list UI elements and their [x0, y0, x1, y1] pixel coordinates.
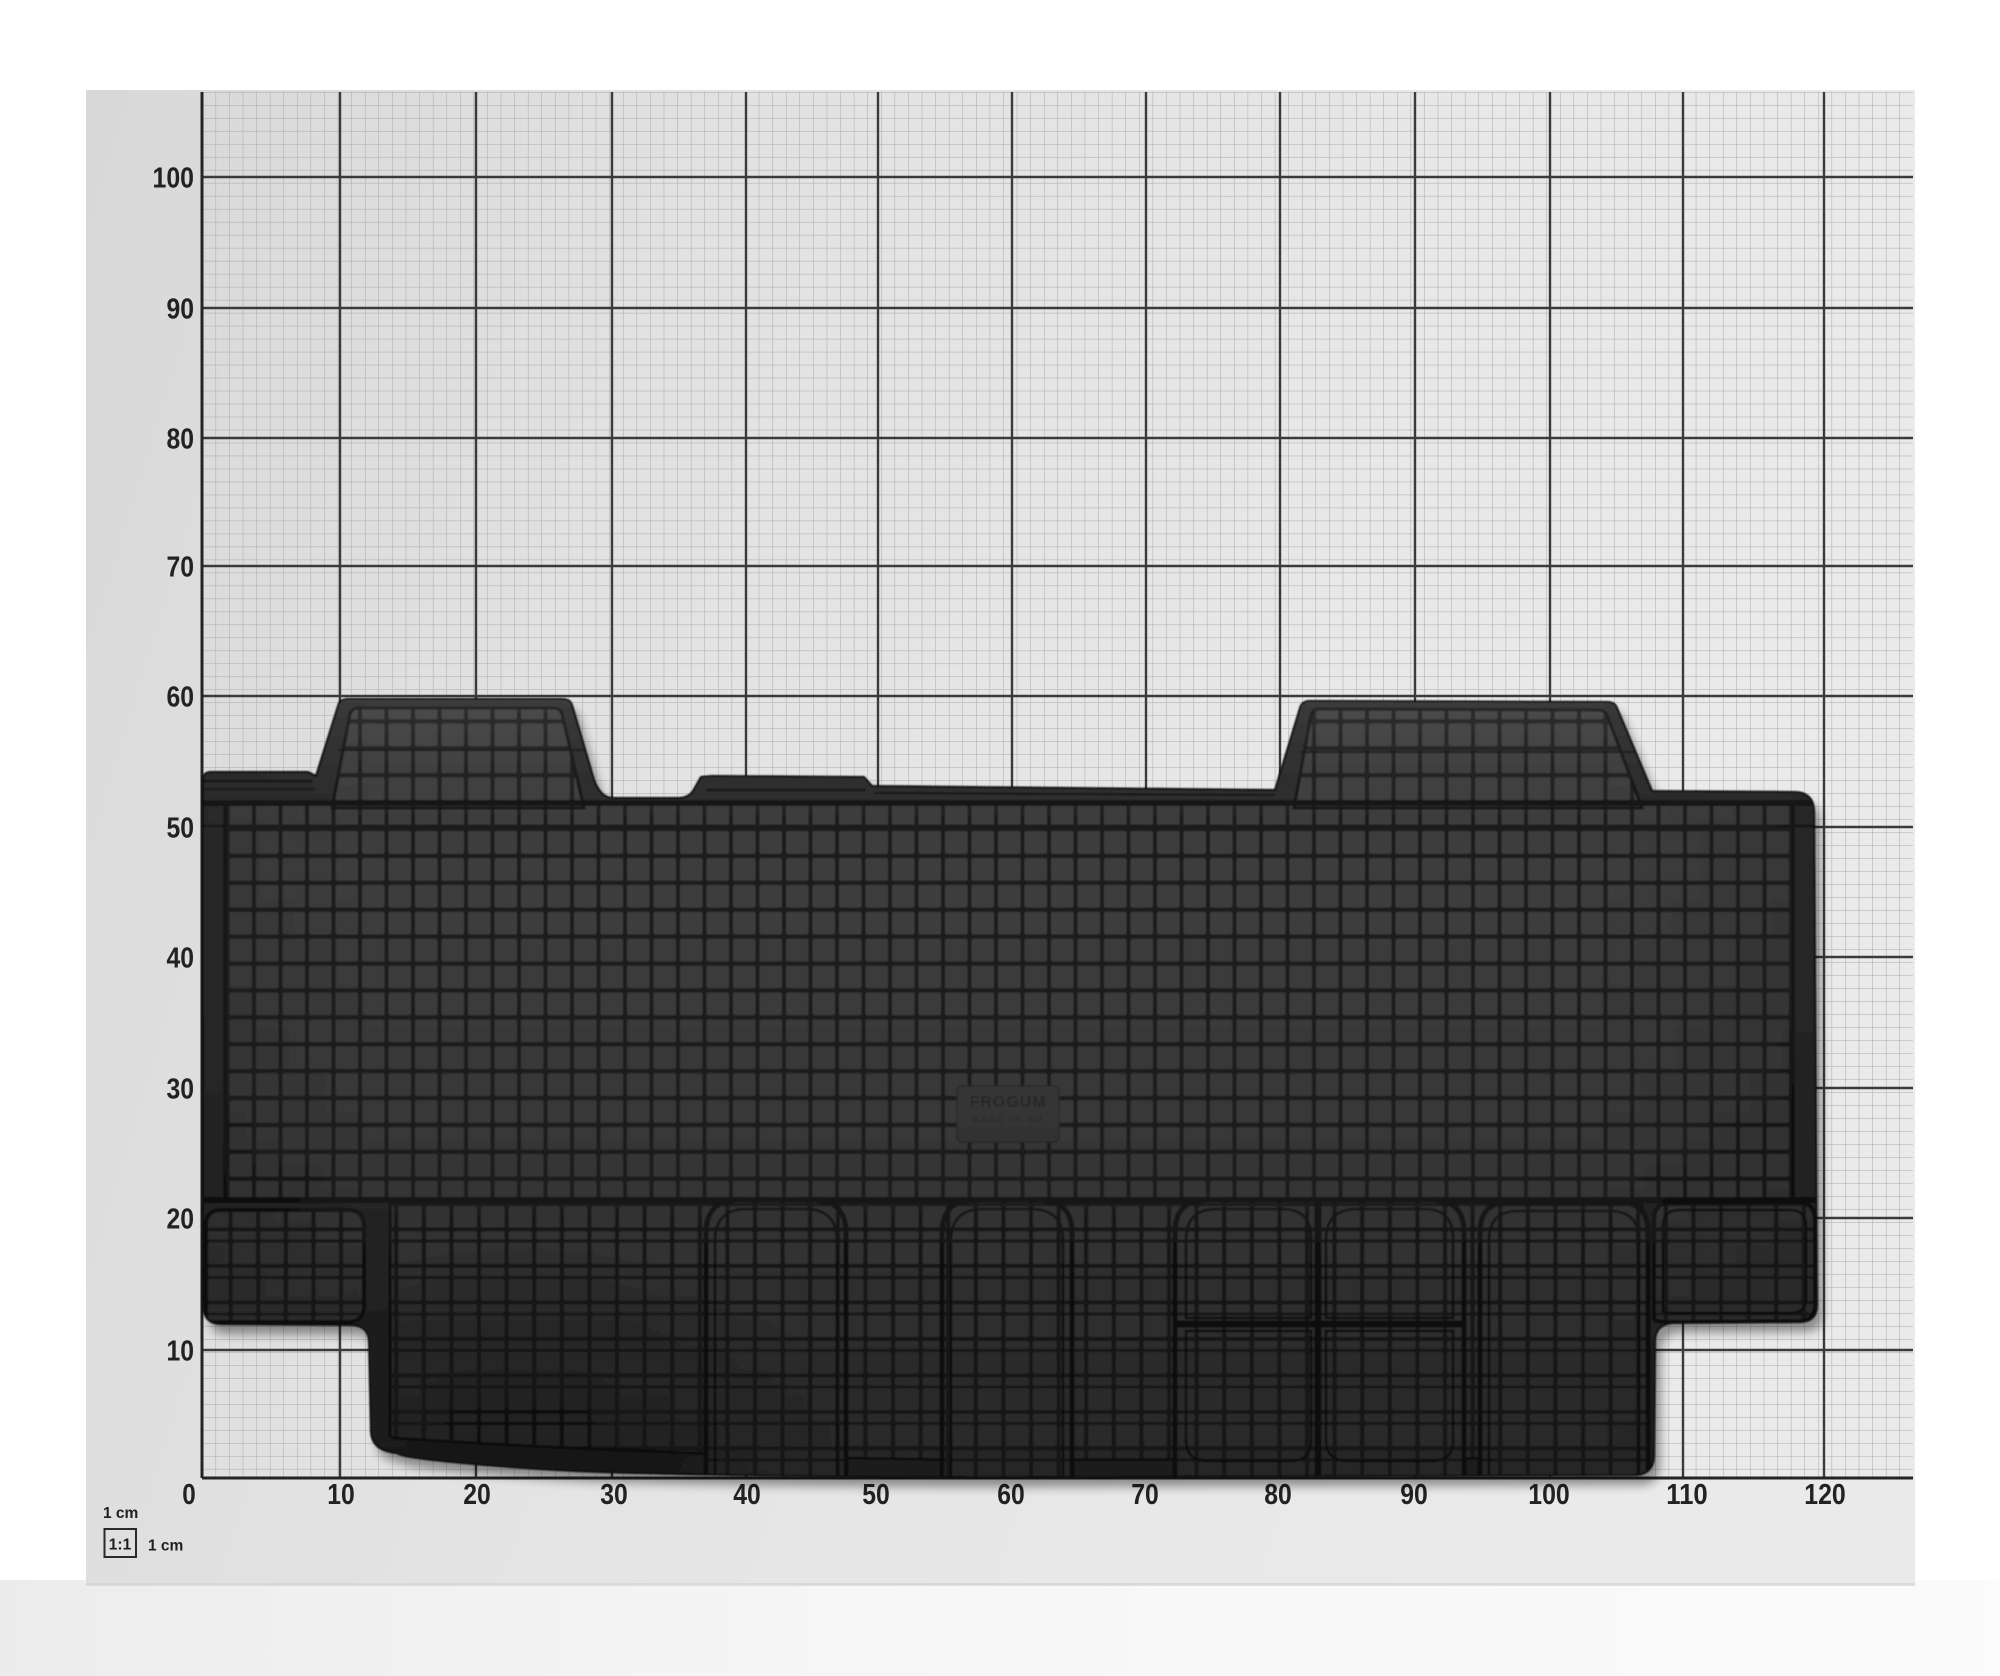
svg-text:10: 10	[167, 1336, 195, 1368]
svg-text:100: 100	[153, 163, 195, 195]
svg-text:110: 110	[1666, 1479, 1708, 1511]
svg-text:50: 50	[167, 813, 195, 845]
svg-text:10: 10	[327, 1479, 355, 1511]
svg-text:1:1: 1:1	[109, 1537, 132, 1554]
svg-text:20: 20	[167, 1204, 195, 1236]
svg-text:120: 120	[1804, 1479, 1846, 1511]
svg-text:1 cm: 1 cm	[103, 1505, 138, 1522]
svg-text:90: 90	[167, 294, 195, 326]
svg-text:70: 70	[167, 552, 195, 584]
svg-text:0: 0	[182, 1479, 196, 1511]
svg-text:80: 80	[167, 424, 195, 456]
svg-text:60: 60	[167, 682, 195, 714]
svg-text:30: 30	[167, 1074, 195, 1106]
svg-text:30: 30	[600, 1479, 628, 1511]
svg-text:1 cm: 1 cm	[148, 1538, 183, 1555]
svg-text:40: 40	[167, 943, 195, 975]
svg-text:20: 20	[463, 1479, 491, 1511]
